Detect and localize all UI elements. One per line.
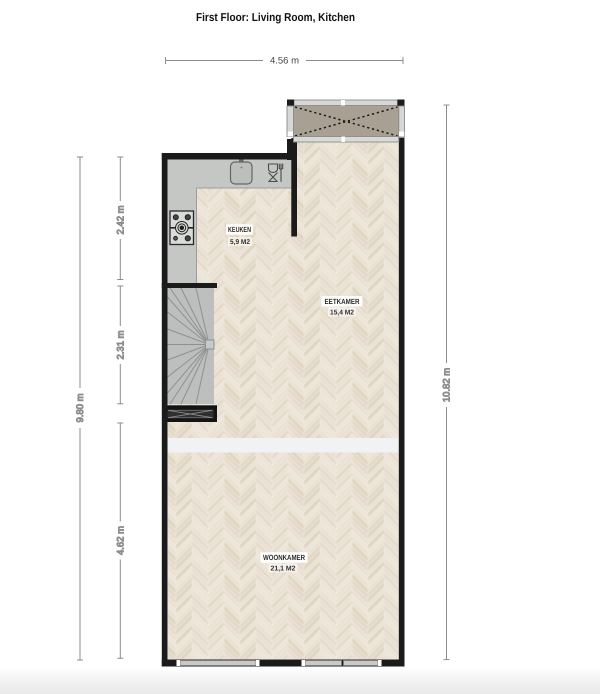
svg-text:5,9 M2: 5,9 M2 [230,239,250,246]
svg-text:EETKAMER: EETKAMER [325,297,360,306]
svg-text:21,1 M2: 21,1 M2 [271,565,296,572]
svg-text:4.56 m: 4.56 m [270,56,299,67]
svg-text:9.80 m: 9.80 m [75,393,86,422]
svg-text:15,4 M2: 15,4 M2 [330,309,354,316]
svg-text:2.42 m: 2.42 m [115,205,126,234]
svg-text:WOONKAMER: WOONKAMER [263,553,305,562]
svg-text:First Floor: Living Room, Kitc: First Floor: Living Room, Kitchen [196,12,355,24]
svg-text:2.31 m: 2.31 m [115,330,126,359]
svg-text:KEUKEN: KEUKEN [228,225,251,234]
svg-text:4.62 m: 4.62 m [115,526,126,555]
svg-text:10.82 m: 10.82 m [442,368,453,402]
